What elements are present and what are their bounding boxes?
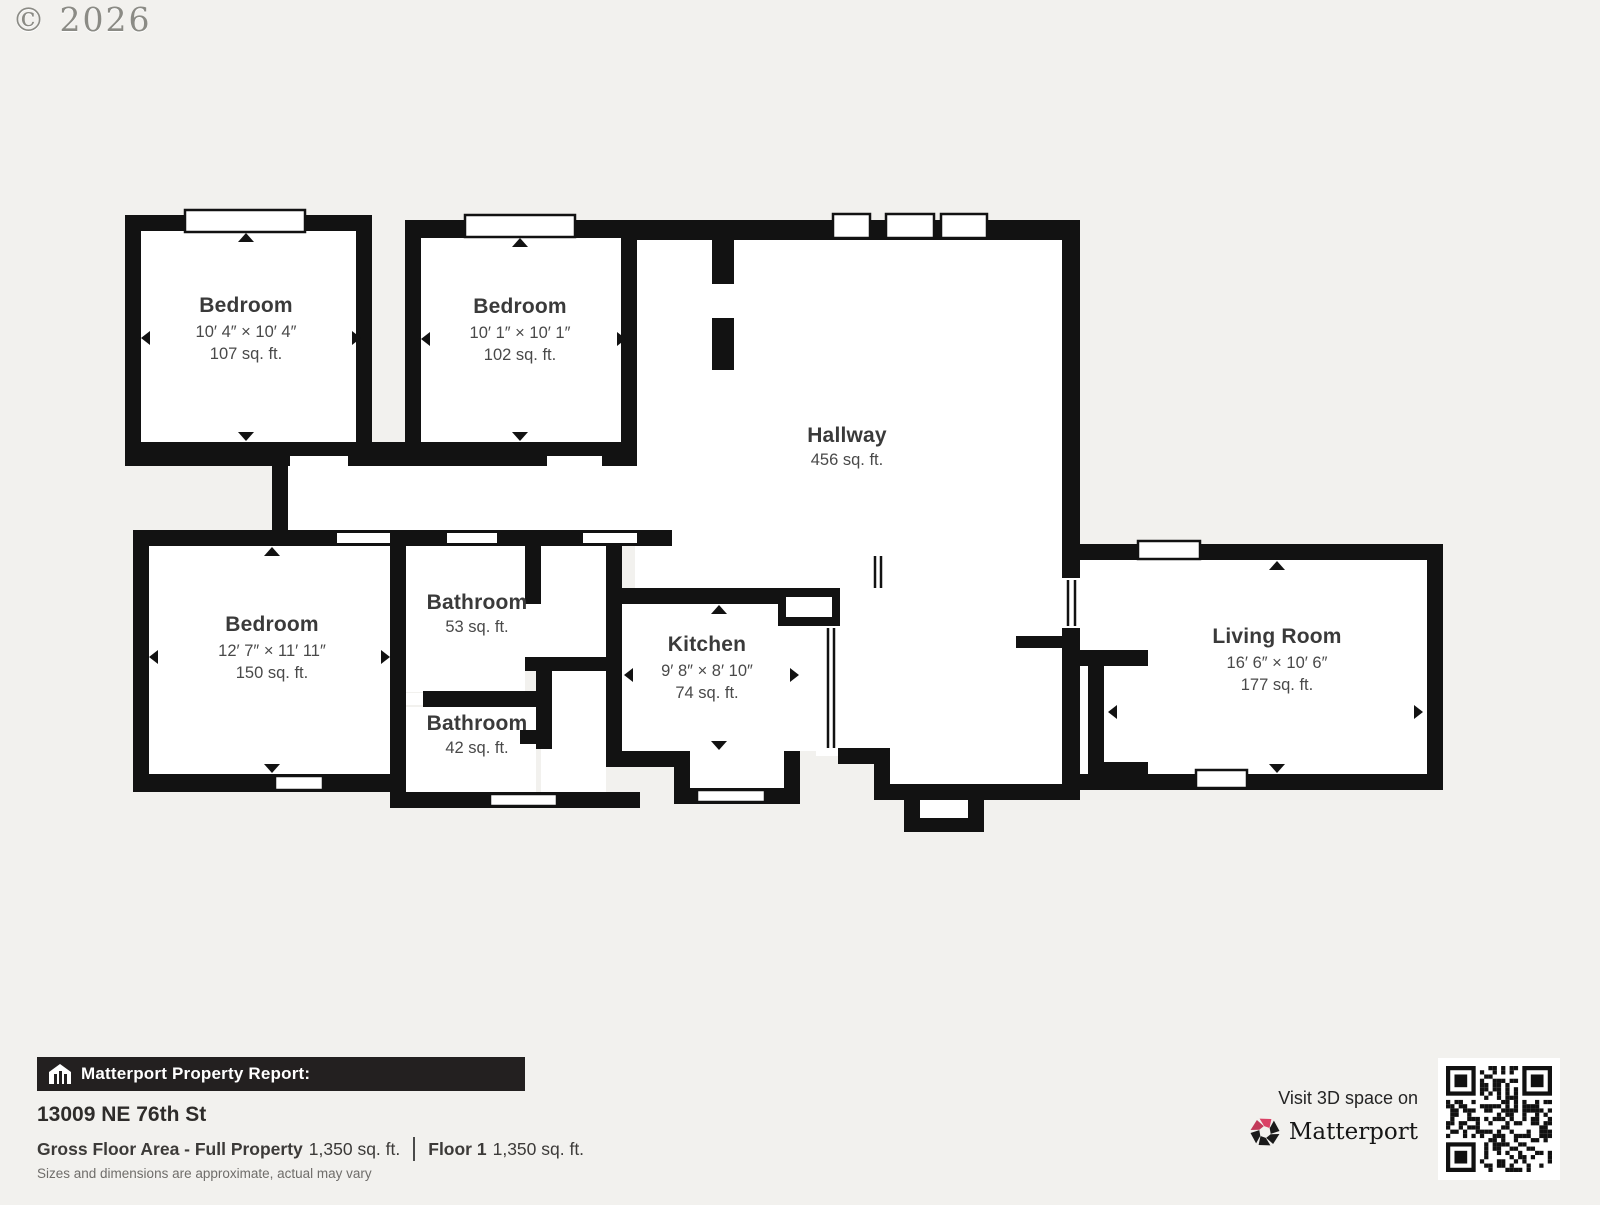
visit-3d-space-cta: Visit 3D space on Matterport (1250, 1088, 1418, 1147)
floor-plan: Bedroom 10′ 4″ × 10′ 4″ 107 sq. ft. Bedr… (0, 0, 1600, 1200)
floor-plan-drawing (0, 0, 1600, 1200)
house-report-icon (49, 1064, 71, 1084)
room-name: Bathroom (427, 591, 528, 615)
room-label-living-room: Living Room 16′ 6″ × 10′ 6″ 177 sq. ft. (1212, 625, 1341, 695)
room-dimensions: 10′ 4″ × 10′ 4″ (196, 323, 297, 342)
floor-value: 1,350 sq. ft. (493, 1139, 584, 1160)
room-label-hallway: Hallway 456 sq. ft. (807, 424, 887, 470)
room-name: Bedroom (196, 294, 297, 318)
room-area: 150 sq. ft. (218, 664, 326, 683)
room-label-bathroom-lower: Bathroom 42 sq. ft. (427, 712, 528, 758)
room-area: 102 sq. ft. (470, 346, 571, 365)
room-area: 53 sq. ft. (427, 618, 528, 637)
room-area: 177 sq. ft. (1212, 676, 1341, 695)
room-name: Hallway (807, 424, 887, 448)
floor-label: Floor 1 (428, 1139, 486, 1160)
floor-area-summary: Gross Floor Area - Full Property 1,350 s… (37, 1137, 584, 1161)
matterport-logo-icon (1250, 1117, 1280, 1147)
room-label-bathroom-upper: Bathroom 53 sq. ft. (427, 591, 528, 637)
room-area: 74 sq. ft. (661, 684, 753, 703)
qr-code (1438, 1058, 1560, 1180)
room-name: Living Room (1212, 625, 1341, 649)
report-title-bar: Matterport Property Report: (37, 1057, 525, 1091)
room-interiors (141, 231, 1427, 818)
report-title: Matterport Property Report: (81, 1064, 310, 1084)
room-name: Kitchen (661, 633, 753, 657)
disclaimer-text: Sizes and dimensions are approximate, ac… (37, 1166, 372, 1181)
room-dimensions: 10′ 1″ × 10′ 1″ (470, 324, 571, 343)
visit-text: Visit 3D space on (1250, 1088, 1418, 1109)
room-label-bedroom-top-left: Bedroom 10′ 4″ × 10′ 4″ 107 sq. ft. (196, 294, 297, 364)
room-name: Bedroom (470, 295, 571, 319)
gross-floor-area-value: 1,350 sq. ft. (309, 1139, 400, 1160)
room-label-bedroom-bottom-left: Bedroom 12′ 7″ × 11′ 11″ 150 sq. ft. (218, 613, 326, 683)
room-dimensions: 12′ 7″ × 11′ 11″ (218, 642, 326, 661)
room-area: 107 sq. ft. (196, 345, 297, 364)
matterport-wordmark: Matterport (1289, 1119, 1418, 1145)
gross-floor-area-label: Gross Floor Area - Full Property (37, 1139, 303, 1160)
room-name: Bathroom (427, 712, 528, 736)
property-address: 13009 NE 76th St (37, 1103, 206, 1127)
room-dimensions: 9′ 8″ × 8′ 10″ (661, 662, 753, 681)
room-area: 456 sq. ft. (807, 451, 887, 470)
room-dimensions: 16′ 6″ × 10′ 6″ (1212, 654, 1341, 673)
floorplan-report-page: { "watermark": "© 2026", "colors": { "ba… (0, 0, 1600, 1200)
room-label-bedroom-top-middle: Bedroom 10′ 1″ × 10′ 1″ 102 sq. ft. (470, 295, 571, 365)
divider (413, 1137, 415, 1161)
room-name: Bedroom (218, 613, 326, 637)
room-label-kitchen: Kitchen 9′ 8″ × 8′ 10″ 74 sq. ft. (661, 633, 753, 703)
room-area: 42 sq. ft. (427, 739, 528, 758)
